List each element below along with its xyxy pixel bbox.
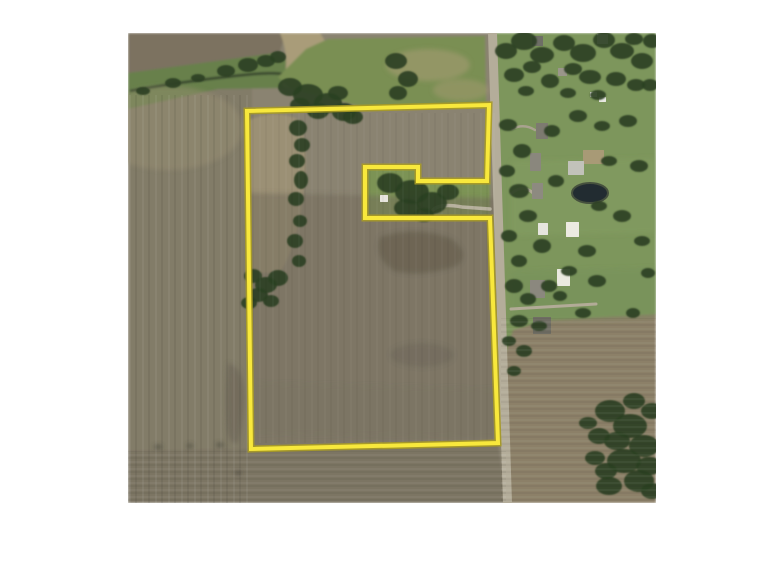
tree <box>575 308 591 318</box>
tree <box>518 86 534 96</box>
tree <box>270 51 286 63</box>
tree <box>511 255 527 267</box>
tree <box>385 53 407 69</box>
parcel-texture <box>247 113 497 443</box>
building <box>568 161 584 175</box>
tree <box>610 43 634 59</box>
tree <box>533 239 551 253</box>
tree <box>561 266 577 276</box>
building <box>532 183 543 199</box>
building <box>566 222 579 237</box>
terrain-stain <box>433 79 489 101</box>
building <box>538 223 548 235</box>
tree <box>641 268 655 278</box>
tree <box>505 279 523 293</box>
aerial-photo <box>128 33 656 503</box>
tree <box>398 71 418 87</box>
tree <box>579 70 601 84</box>
tree <box>328 86 348 100</box>
tree <box>504 68 524 82</box>
tree <box>523 61 541 73</box>
tree <box>553 291 567 301</box>
tree <box>625 33 643 45</box>
se-field-texture <box>501 318 656 503</box>
tree <box>217 65 235 77</box>
tree <box>588 275 606 287</box>
building <box>583 150 604 164</box>
tree <box>626 308 640 318</box>
west-field-texture <box>128 95 252 503</box>
tree <box>499 165 515 177</box>
south-field-texture <box>128 451 506 503</box>
page-root <box>0 0 784 588</box>
tree <box>564 63 582 75</box>
tree <box>560 88 576 98</box>
tree <box>594 121 610 131</box>
tree <box>509 184 529 198</box>
tree <box>606 72 626 86</box>
tree <box>570 44 596 62</box>
tree <box>389 86 407 100</box>
tree <box>590 90 606 100</box>
tree <box>548 175 564 187</box>
tree <box>238 58 258 72</box>
tree <box>499 119 517 131</box>
pond <box>572 183 608 203</box>
tree <box>634 236 650 246</box>
tree <box>619 115 637 127</box>
tree <box>631 53 653 69</box>
tree <box>530 47 554 63</box>
tree <box>630 160 648 172</box>
tree <box>136 87 150 95</box>
tree <box>191 74 205 82</box>
tree <box>520 293 536 305</box>
tree <box>541 74 559 88</box>
tree <box>541 280 557 292</box>
tree <box>569 110 587 122</box>
tree <box>578 245 596 257</box>
tree <box>501 230 517 242</box>
tree <box>613 210 631 222</box>
tree <box>591 201 607 211</box>
tree <box>165 78 181 88</box>
tree <box>513 144 531 158</box>
tree <box>544 125 560 137</box>
tree <box>519 210 537 222</box>
aerial-frame <box>128 33 656 503</box>
building <box>530 153 541 171</box>
tree <box>601 156 617 166</box>
